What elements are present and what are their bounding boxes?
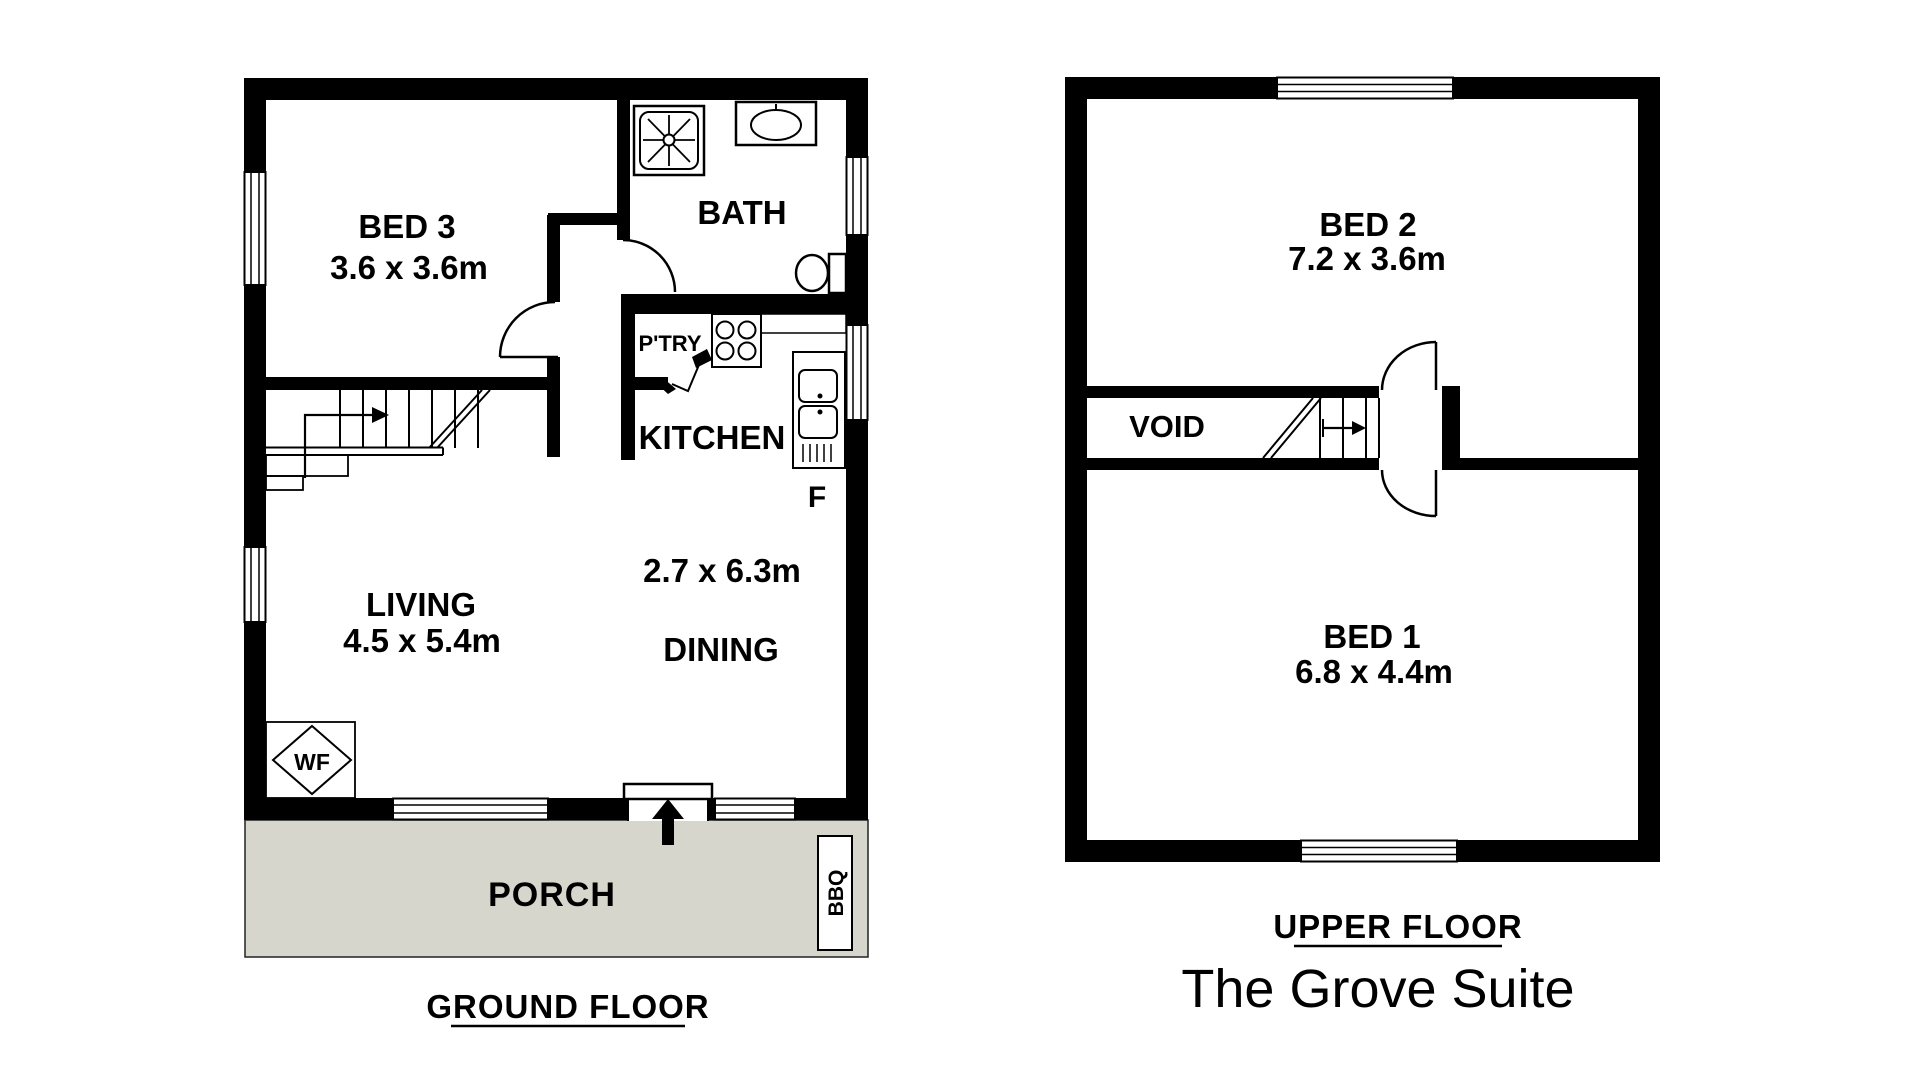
vanity-sink-icon bbox=[736, 102, 816, 145]
pantry-label: P'TRY bbox=[638, 331, 701, 356]
ground-floor-title-text: GROUND FLOOR bbox=[426, 988, 709, 1025]
living-dims: 4.5 x 5.4m bbox=[343, 622, 501, 659]
window-living-left bbox=[245, 547, 266, 622]
bed2-label: BED 2 bbox=[1319, 206, 1416, 243]
window-bed3-left bbox=[245, 172, 266, 285]
kitchen-label: KITCHEN bbox=[639, 419, 786, 456]
bath-label: BATH bbox=[697, 194, 786, 231]
ground-stairs bbox=[266, 390, 490, 490]
bath-door-arc-icon bbox=[623, 240, 675, 292]
upper-stairs-arrow-icon bbox=[1323, 419, 1366, 437]
window-dining-bottom bbox=[715, 799, 795, 820]
bed3-label: BED 3 bbox=[358, 208, 455, 245]
ground-floor-title: GROUND FLOOR bbox=[426, 988, 709, 1026]
upper-floor-title: UPPER FLOOR bbox=[1273, 908, 1522, 946]
toilet-icon bbox=[796, 254, 846, 293]
bbq-label: BBQ bbox=[825, 870, 848, 917]
void-label: VOID bbox=[1129, 409, 1205, 444]
wf-label: WF bbox=[294, 749, 330, 775]
bed1-label: BED 1 bbox=[1323, 618, 1420, 655]
window-kitchen-right bbox=[847, 325, 868, 420]
ground-doors bbox=[500, 240, 712, 394]
upper-floor-title-text: UPPER FLOOR bbox=[1273, 908, 1522, 945]
window-living-bottom bbox=[393, 799, 548, 820]
bed3-dims: 3.6 x 3.6m bbox=[330, 249, 488, 286]
plan-title: The Grove Suite bbox=[1181, 959, 1574, 1019]
bed1-dims: 6.8 x 4.4m bbox=[1295, 653, 1453, 690]
bed3-door-arc-icon bbox=[500, 302, 558, 357]
floor-plan-page: BBQ PORCH bbox=[0, 0, 1920, 1080]
shower-icon bbox=[634, 106, 704, 175]
dining-dims: 2.7 x 6.3m bbox=[643, 552, 801, 589]
kitchen-sink-icon bbox=[793, 352, 845, 468]
window-bed1-bottom bbox=[1301, 841, 1457, 862]
fridge-label: F bbox=[808, 481, 826, 514]
ground-floor-plan: BBQ PORCH bbox=[244, 78, 868, 1026]
upper-floor-plan: BED 2 7.2 x 3.6m VOID BED 1 6.8 x 4.4m U… bbox=[1065, 77, 1660, 946]
window-bed2-top bbox=[1277, 78, 1453, 99]
wf-marker: WF bbox=[266, 722, 355, 798]
dining-label: DINING bbox=[663, 631, 779, 668]
porch-area: BBQ PORCH bbox=[245, 820, 868, 957]
living-label: LIVING bbox=[366, 586, 476, 623]
upper-stairs bbox=[1263, 398, 1379, 458]
porch-label: PORCH bbox=[488, 876, 616, 914]
upper-landing-door-icon bbox=[1382, 342, 1436, 516]
stairs-up-arrow-icon bbox=[305, 407, 389, 478]
floor-plan-drawing: BBQ PORCH bbox=[0, 0, 1920, 1080]
bed2-dims: 7.2 x 3.6m bbox=[1288, 240, 1446, 277]
window-bath-right bbox=[847, 157, 868, 235]
